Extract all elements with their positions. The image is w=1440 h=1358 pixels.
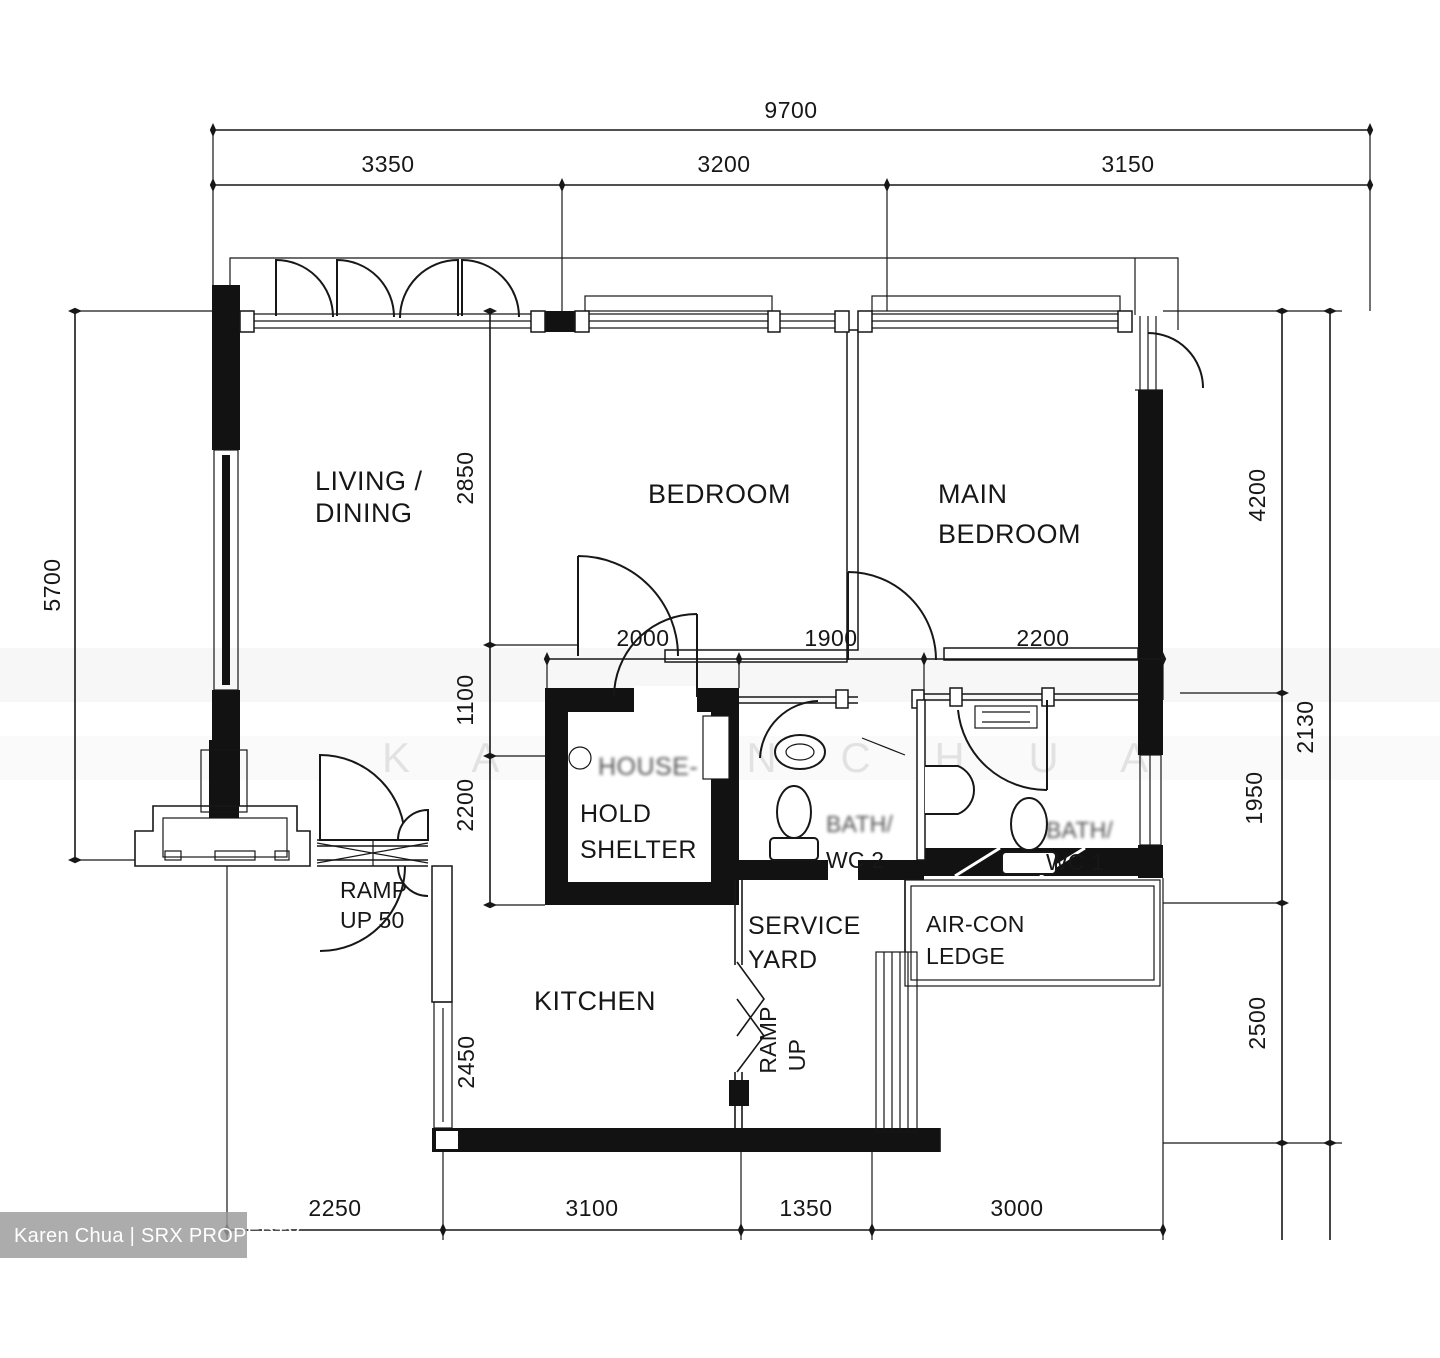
windows [240,311,1163,390]
dim-kitchen-window: 2450 [453,1035,479,1088]
label-ramp-up-50-line2: UP 50 [340,907,405,933]
label-ramp-up-line1: RAMP [755,1006,781,1073]
dim-right-outer: 2130 [1292,700,1318,753]
label-aircon-line2: LEDGE [926,943,1005,969]
watermark-credit: Karen Chua | SRX PROPERTY [14,1225,301,1247]
dim-left-seg2: 1100 [452,674,478,725]
label-wc2-line1: BATH/ [826,811,893,837]
label-ramp-up-50-line1: RAMP [340,877,407,903]
label-living-line1: LIVING / [315,466,423,496]
label-kitchen: KITCHEN [534,986,656,1016]
label-ramp-up-line2: UP [784,1039,810,1071]
dim-bottom-seg3: 1350 [779,1195,832,1221]
dim-bottom-seg2: 3100 [565,1195,618,1221]
entrance-door-leaf-upper-small [398,810,428,840]
corner-window [1135,316,1163,390]
bedroom-window [575,311,849,332]
dim-left-seg1: 2850 [452,451,478,504]
floor-plan-drawing: K A R E N C H U A [0,0,1440,1358]
label-shelter-line1: HOUSE- [598,753,698,781]
dimension-top-segments: 3350 3200 3150 [210,151,1373,311]
dim-left-total: 5700 [39,558,65,611]
dim-mid-seg3: 2200 [1016,625,1069,651]
bifold-leaf-1 [276,260,333,317]
label-wc2-line2: WC 2 [826,847,884,873]
wc1-vanity-marks [982,712,1030,722]
main-bedroom-door-arc [848,572,936,660]
dimension-top-total: 9700 [210,97,1373,311]
bifold-leaf-2 [337,260,394,317]
dim-right-seg2: 1950 [1241,771,1267,824]
label-service-yard-line2: YARD [748,946,818,974]
dim-right-seg1: 4200 [1244,468,1270,521]
dim-top-seg2: 3200 [697,151,750,177]
dim-mid-seg1: 2000 [616,625,669,651]
label-wc1-line2: WC 1 [1046,849,1104,875]
dim-mid-seg2: 1900 [804,625,857,651]
label-bedroom: BEDROOM [648,479,791,509]
walls [209,285,1163,1152]
floor-plan-page: K A R E N C H U A [0,0,1440,1358]
wc1-basin [925,766,974,814]
dim-top-seg3: 3150 [1101,151,1154,177]
label-service-yard-line1: SERVICE [748,912,861,940]
watermark-bar: Karen Chua | SRX PROPERTY [0,1212,301,1258]
bifold-leaf-3 [400,260,458,318]
dim-right-seg3: 2500 [1244,996,1270,1049]
label-main-bedroom-line1: MAIN [938,479,1008,509]
label-living-line2: DINING [315,498,413,528]
dim-left-seg3: 2200 [452,778,478,831]
main-bedroom-window [858,311,1132,332]
label-aircon-line1: AIR-CON [926,911,1025,937]
label-shelter-line2: HOLD [580,800,651,828]
label-shelter-line3: SHELTER [580,836,697,864]
dimension-kitchen-window: 2450 [453,1035,479,1088]
dim-bottom-seg1: 2250 [308,1195,361,1221]
label-main-bedroom-line2: BEDROOM [938,519,1081,549]
dim-top-total: 9700 [764,97,817,123]
label-wc1-line1: BATH/ [1046,817,1113,843]
dim-top-seg1: 3350 [361,151,414,177]
door-arcs [276,260,1203,951]
living-window [240,311,545,332]
wc2-toilet [770,786,818,860]
dim-bottom-seg4: 3000 [990,1195,1043,1221]
